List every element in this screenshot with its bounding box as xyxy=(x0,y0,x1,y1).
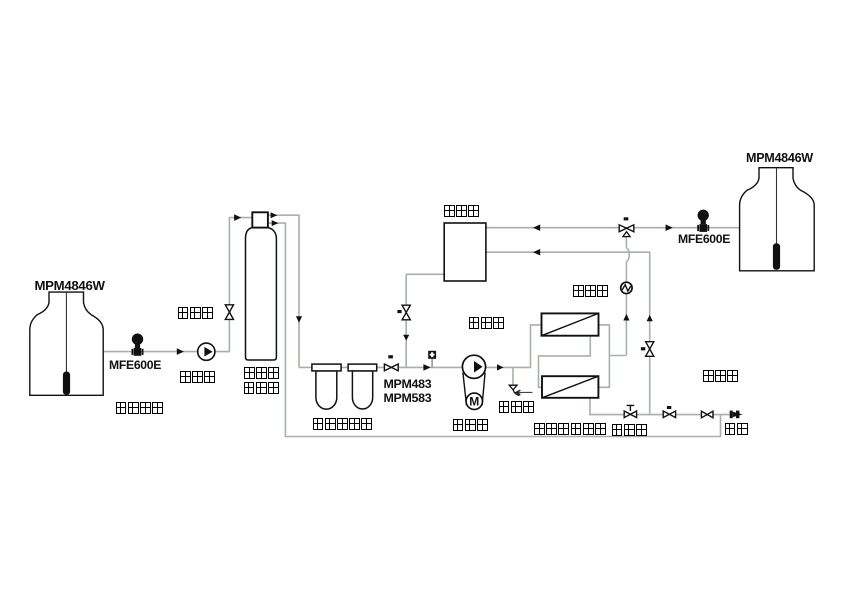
svg-text:M: M xyxy=(469,395,479,409)
